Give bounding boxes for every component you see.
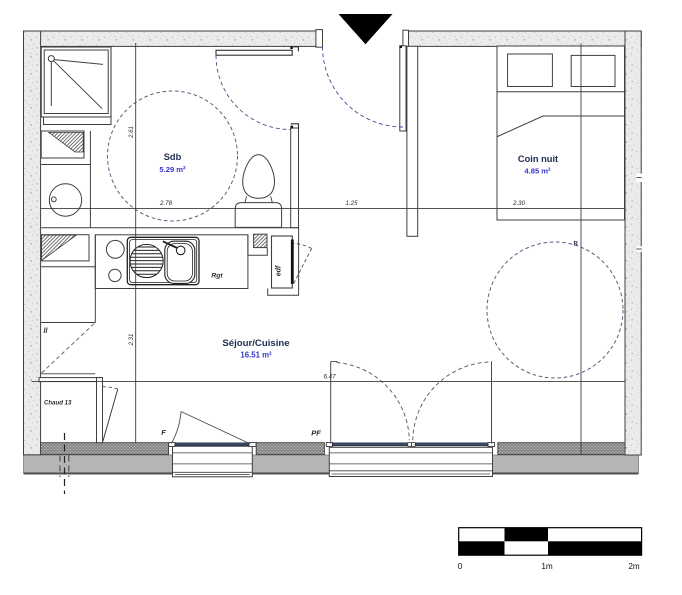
svg-text:F: F bbox=[161, 428, 166, 437]
svg-text:2.61: 2.61 bbox=[129, 126, 135, 139]
svg-text:5.29 m²: 5.29 m² bbox=[159, 165, 186, 174]
svg-text:6.47: 6.47 bbox=[323, 374, 336, 381]
svg-text:Coin nuit: Coin nuit bbox=[518, 154, 558, 164]
svg-text:Rgt: Rgt bbox=[211, 273, 223, 280]
svg-text:1.25: 1.25 bbox=[345, 200, 358, 207]
svg-text:edf: edf bbox=[276, 265, 283, 276]
svg-text:2m: 2m bbox=[628, 562, 640, 571]
svg-text:2.78: 2.78 bbox=[159, 200, 173, 207]
svg-text:2.30: 2.30 bbox=[512, 200, 526, 207]
svg-text:16.51 m²: 16.51 m² bbox=[240, 351, 272, 360]
svg-text:Chaud 13: Chaud 13 bbox=[44, 400, 72, 407]
svg-text:PF: PF bbox=[311, 429, 321, 438]
svg-text:0: 0 bbox=[458, 562, 463, 571]
svg-text:Sdb: Sdb bbox=[164, 152, 182, 162]
svg-text:Séjour/Cuisine: Séjour/Cuisine bbox=[222, 338, 289, 349]
svg-text:R: R bbox=[574, 242, 579, 248]
svg-text:1m: 1m bbox=[541, 562, 553, 571]
svg-text:2.31: 2.31 bbox=[129, 334, 135, 347]
svg-text:4.85 m²: 4.85 m² bbox=[524, 167, 551, 176]
